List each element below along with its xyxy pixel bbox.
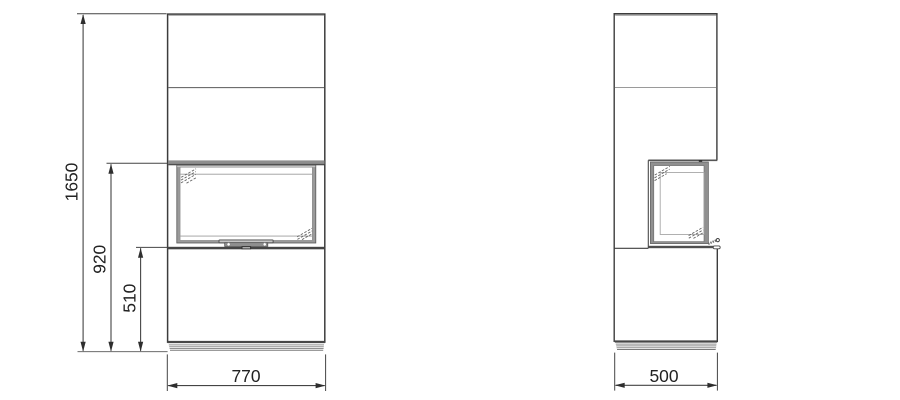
svg-text:770: 770 bbox=[231, 366, 260, 386]
svg-text:1650: 1650 bbox=[62, 163, 82, 202]
svg-text:920: 920 bbox=[89, 245, 109, 274]
svg-text:500: 500 bbox=[649, 366, 678, 386]
svg-text:510: 510 bbox=[119, 284, 139, 313]
